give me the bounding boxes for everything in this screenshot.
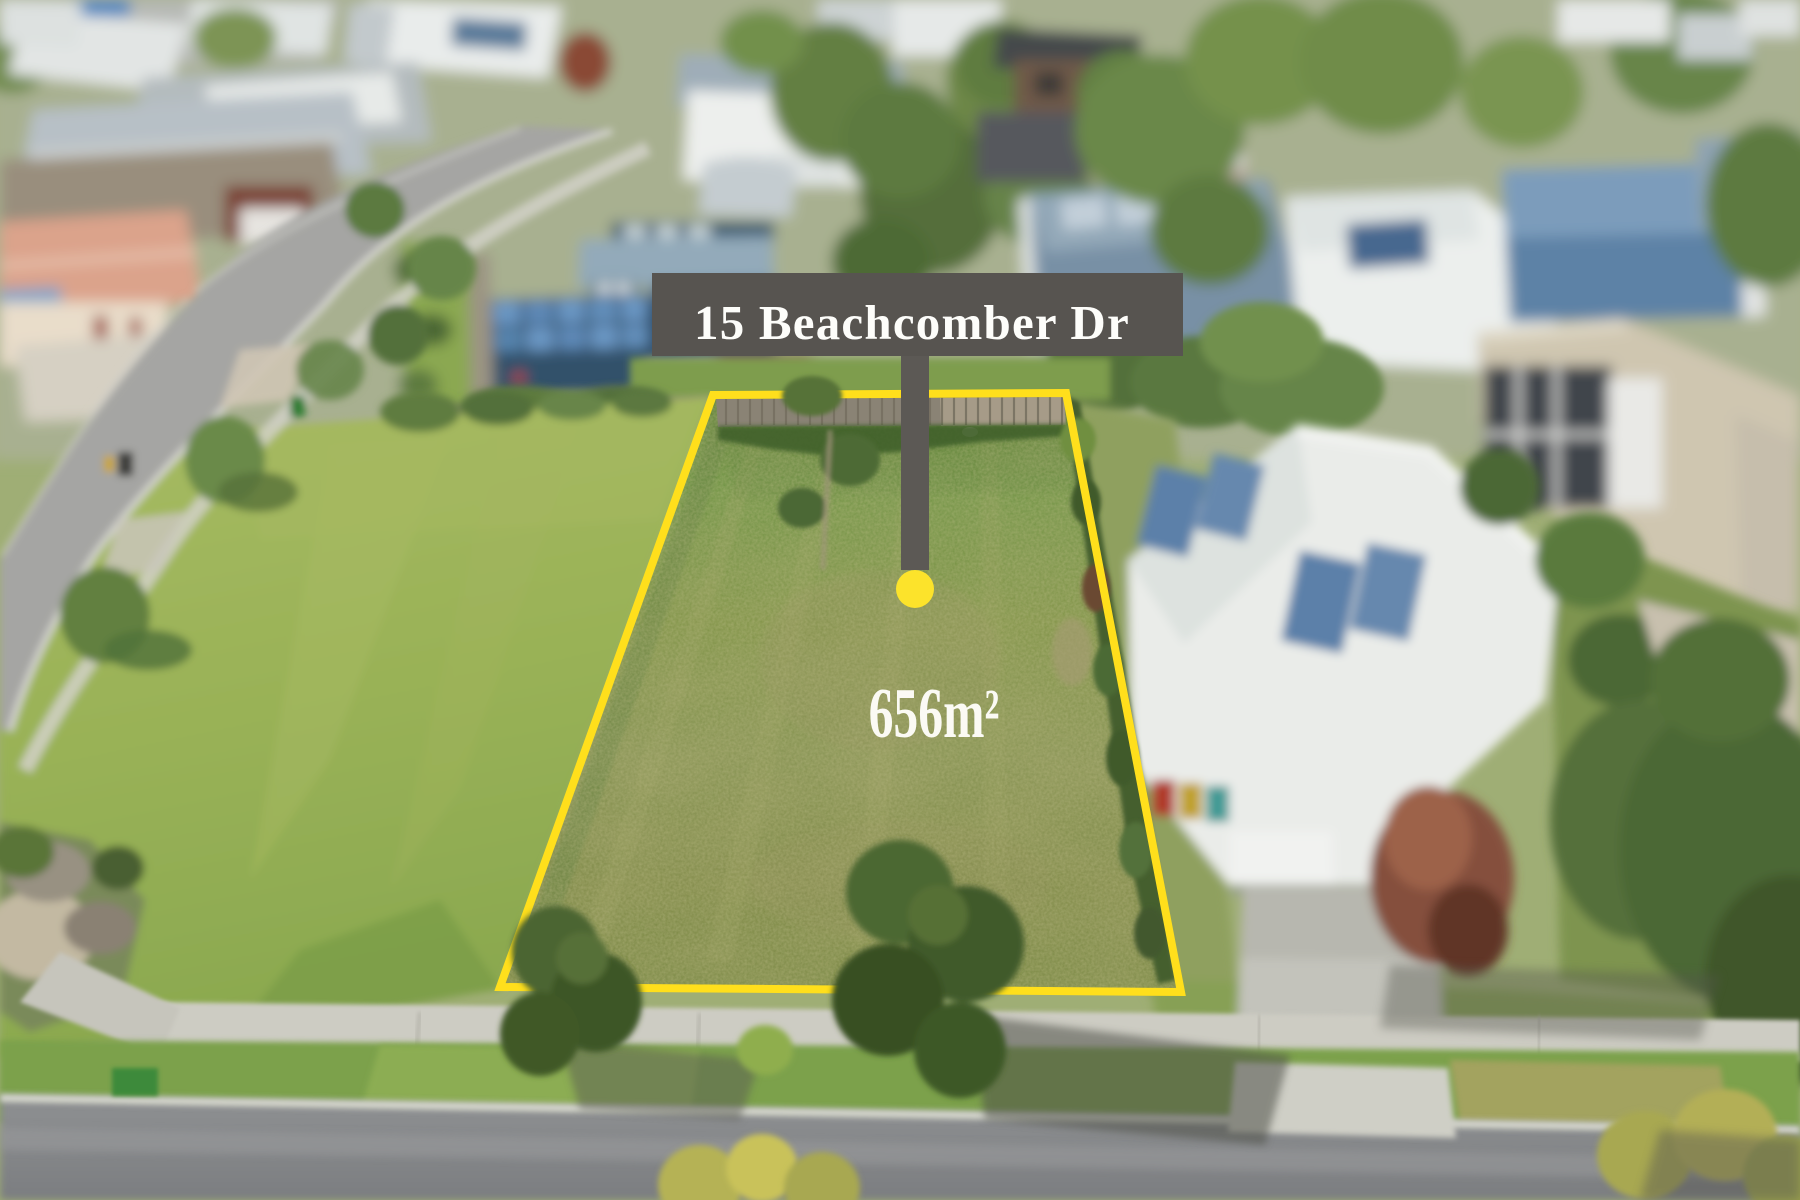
svg-text:656m²: 656m² (869, 674, 1000, 753)
svg-text:15 Beachcomber Dr: 15 Beachcomber Dr (694, 295, 1130, 350)
